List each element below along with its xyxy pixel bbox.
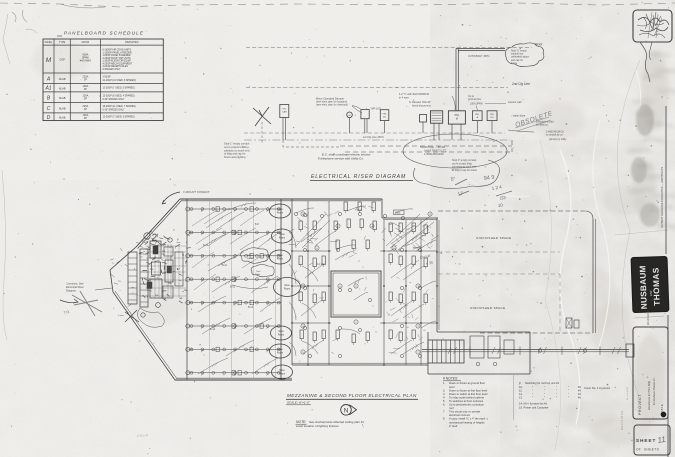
svg-text:": "	[544, 396, 545, 400]
svg-text:REVISIONS: REVISIONS	[620, 410, 624, 430]
svg-text:Down to fixture at first floor: Down to fixture at first floor level	[449, 388, 488, 392]
svg-text:This circuit only on private: This circuit only on private	[449, 410, 481, 414]
svg-text:Cond. No. 1 # ground: Cond. No. 1 # ground	[584, 386, 610, 390]
svg-text:Store: Store	[284, 284, 290, 287]
svg-text:"WP-100": "WP-100"	[370, 107, 381, 110]
svg-text:14. M.H. furnace fan #1: 14. M.H. furnace fan #1	[519, 402, 548, 406]
svg-text:Warehouse & Office Bldg: Warehouse & Office Bldg	[647, 380, 651, 410]
svg-text:exterior wall: exterior wall	[508, 101, 522, 104]
svg-text:24-20/1P (16 USED, 8 SPARES): 24-20/1P (16 USED, 8 SPARES)	[103, 79, 137, 82]
svg-text:12-20/1P (7 USED, 5 SPARES): 12-20/1P (7 USED, 5 SPARES)	[103, 87, 135, 90]
svg-text:Connects, See: Connects, See	[66, 282, 84, 286]
svg-text:Room: Room	[277, 353, 283, 355]
svg-text:DBL: DBL	[395, 211, 401, 215]
svg-text:#3: #3	[578, 389, 581, 393]
svg-text:of bldg 2 cap for future: of bldg 2 cap for future	[452, 169, 478, 172]
svg-text:V-MOUNT CONDUIT: V-MOUNT CONDUIT	[183, 190, 210, 194]
svg-text:Roof: Roof	[535, 43, 543, 47]
svg-text:": "	[532, 385, 533, 389]
svg-text:NLAB: NLAB	[59, 96, 66, 100]
svg-text:future: future	[511, 62, 518, 65]
svg-text:12.: 12.	[519, 392, 523, 396]
svg-text:SCALE: ⅛"=1’-0": SCALE: ⅛"=1’-0"	[287, 401, 311, 405]
svg-text:": "	[544, 385, 545, 389]
svg-text:NLAB: NLAB	[59, 107, 66, 111]
svg-text:100A 3P4W: 100A 3P4W	[470, 103, 483, 106]
svg-text:NUSBAUM: NUSBAUM	[638, 265, 649, 309]
svg-text:No. 1 6-12-57: No. 1 6-12-57	[627, 386, 629, 400]
svg-text:SHEET: SHEET	[636, 438, 656, 443]
svg-text:#5: #5	[578, 396, 581, 400]
svg-text:PNL: PNL	[150, 269, 154, 271]
svg-text:1-30/3P ELEVATOR EQUIP: 1-30/3P ELEVATOR EQUIP	[103, 60, 132, 63]
svg-text:PNL: PNL	[155, 295, 159, 297]
svg-text:Down to switch at first floor: Down to switch at first floor level	[449, 392, 488, 396]
svg-text:2" stud: 2" stud	[449, 424, 458, 428]
svg-text:Room: Room	[247, 255, 253, 257]
svg-text:¶ telephone service with Utili: ¶ telephone service with Utility Co.	[318, 157, 364, 161]
svg-text:in conduit by co.: in conduit by co.	[546, 134, 564, 137]
svg-text:UNFINISHED SPACE: UNFINISHED SPACE	[476, 236, 512, 240]
svg-text:THOMAS: THOMAS	[651, 267, 661, 306]
svg-text:": "	[556, 396, 557, 400]
svg-text:CUTR BODY 453½: CUTR BODY 453½	[468, 54, 491, 58]
svg-text:4.: 4.	[443, 395, 445, 399]
svg-text:Room: Room	[278, 335, 284, 337]
svg-text:13.: 13.	[519, 396, 523, 400]
svg-text:5.: 5.	[443, 399, 445, 403]
svg-text:12-20/1P (8 USED, 4 SPARES): 12-20/1P (8 USED, 4 SPARES)	[103, 95, 135, 98]
svg-text:3P: 3P	[84, 88, 87, 91]
svg-text:6-SPACES ONLY: 6-SPACES ONLY	[103, 68, 121, 71]
svg-text:1-#500-350 MCM: 1-#500-350 MCM	[424, 153, 443, 156]
svg-text:B-11: B-11	[222, 264, 228, 267]
svg-text:conduits on south end: conduits on south end	[224, 148, 250, 152]
svg-text:M: M	[349, 115, 351, 117]
svg-text:ENGINEERS: ENGINEERS	[648, 311, 650, 325]
svg-text:Store: Store	[279, 369, 285, 372]
svg-text:Switchleg for roof top unit #1: Switchleg for roof top unit #1	[525, 381, 560, 385]
svg-text:Room: Room	[284, 289, 290, 291]
svg-text:Store: Store	[278, 330, 284, 333]
svg-text:(see elect plan for interlock): (see elect plan for interlock)	[316, 103, 348, 107]
svg-text:To relay outlet behind cabinet: To relay outlet behind cabinet	[449, 395, 484, 399]
svg-text:mechanical heating of heights: mechanical heating of heights	[449, 420, 485, 424]
svg-text:2.: 2.	[443, 388, 445, 392]
svg-text:PANELBOARD SCHEDULE: PANELBOARD SCHEDULE	[64, 31, 144, 36]
svg-text:DATE: DATE	[660, 404, 664, 413]
svg-text:MEZZANINE & SECOND FLOOR ELECT: MEZZANINE & SECOND FLOOR ELECTRICAL PLAN	[287, 393, 417, 398]
svg-text:grnd wtr line: grnd wtr line	[468, 98, 482, 101]
svg-text:for Nusbaum-Thomas Inc.: for Nusbaum-Thomas Inc.	[653, 377, 656, 405]
svg-text:1-100/3P PANEL A FEEDER: 1-100/3P PANEL A FEEDER	[103, 51, 132, 54]
svg-text:": "	[556, 389, 557, 393]
svg-text:D: D	[47, 115, 51, 121]
svg-text:by utility co.: by utility co.	[536, 124, 549, 127]
svg-text:level: level	[449, 385, 455, 389]
svg-text:": "	[556, 392, 557, 396]
svg-text:out to expect building: out to expect building	[224, 145, 249, 149]
svg-text:": "	[532, 392, 533, 396]
svg-text:": "	[568, 389, 569, 393]
svg-text:roof: roof	[449, 406, 454, 410]
svg-text:B-13: B-13	[248, 306, 254, 309]
svg-text:Store: Store	[277, 254, 283, 257]
svg-text:exact location of lighting fix: exact location of lighting fixtures.	[296, 424, 340, 428]
svg-text:PNL: PNL	[146, 239, 150, 241]
svg-text:Turn: Turn	[256, 270, 261, 273]
svg-text:in 4 wire: in 4 wire	[399, 96, 409, 100]
svg-text:1.: 1.	[443, 381, 445, 385]
svg-text:UNFINISHED SPACE: UNFINISHED SPACE	[470, 306, 506, 310]
svg-text:Stub 1" empty conduit: Stub 1" empty conduit	[224, 142, 250, 146]
svg-text:BRANCHES: BRANCHES	[125, 41, 139, 44]
svg-text:COP: COP	[59, 58, 65, 62]
svg-text:PROJECT: PROJECT	[638, 394, 642, 415]
svg-text:": "	[544, 392, 545, 396]
svg-text:11.: 11.	[519, 389, 523, 393]
svg-text:": "	[532, 396, 533, 400]
svg-text:": "	[532, 389, 533, 393]
svg-text:Diagram: Diagram	[66, 288, 77, 292]
svg-text:C: C	[47, 106, 51, 112]
svg-text:18-20/1P (11 USED, 7 SPARES): 18-20/1P (11 USED, 7 SPARES)	[103, 105, 136, 108]
svg-text:6-100/2P AIR COND UNITS: 6-100/2P AIR COND UNITS	[103, 49, 132, 52]
svg-text:OF: OF	[636, 448, 641, 452]
svg-text:": "	[556, 385, 557, 389]
svg-text:Room: Room	[277, 259, 283, 261]
svg-text:2-50/2P: 2-50/2P	[103, 77, 112, 79]
svg-text:Panels: Panels	[247, 258, 255, 260]
svg-text:B-8: B-8	[255, 223, 259, 226]
svg-text:PANEL: PANEL	[45, 41, 53, 44]
svg-text:N: N	[344, 407, 349, 414]
svg-text:3P: 3P	[84, 98, 87, 101]
svg-text:CAB: CAB	[282, 111, 287, 114]
svg-text:1st Clg Line 453½: 1st Clg Line 453½	[363, 135, 385, 139]
svg-text:Table: Table	[255, 274, 261, 276]
svg-text:SCHMIDT GARDEN & ASSOCIATES —: SCHMIDT GARDEN & ASSOCIATES — ARCHITECTS	[661, 167, 664, 228]
svg-text:6-30" SPACES ONLY: 6-30" SPACES ONLY	[103, 98, 125, 101]
svg-text:Down to fixture at ground floo: Down to fixture at ground floor	[449, 381, 485, 385]
svg-text:A copy, install ½" x 4" tile e: A copy, install ½" x 4" tile each	[449, 417, 486, 421]
svg-text:of bldg and cap for: of bldg and cap for	[224, 152, 246, 156]
svg-text:Room: Room	[277, 213, 283, 215]
svg-text:": "	[568, 392, 569, 396]
svg-text:Store: Store	[279, 233, 285, 236]
svg-text:primary by utility: primary by utility	[549, 138, 567, 141]
svg-text:MAINS: MAINS	[82, 41, 90, 44]
svg-text:6.: 6.	[443, 403, 445, 407]
svg-text:ELECTRICAL RISER DIAGRAM: ELECTRICAL RISER DIAGRAM	[311, 174, 406, 180]
svg-text:Store: Store	[277, 348, 283, 351]
svg-text:15. Power unit Complete: 15. Power unit Complete	[519, 405, 549, 409]
svg-text:# NOTES:: # NOTES:	[443, 377, 458, 381]
svg-text:1-2 ½" with #4/0-500MCM: 1-2 ½" with #4/0-500MCM	[399, 92, 429, 96]
svg-text:SHEETS: SHEETS	[644, 448, 659, 452]
svg-text:7.: 7.	[443, 410, 445, 414]
svg-text:4-20/3P MECH EQUIPMENT: 4-20/3P MECH EQUIPMENT	[103, 63, 133, 65]
svg-text:#2: #2	[578, 385, 581, 389]
svg-text:10.: 10.	[519, 385, 523, 389]
svg-text:NLAB: NLAB	[59, 77, 66, 81]
svg-text:11: 11	[657, 435, 667, 445]
svg-text:8.: 8.	[443, 417, 445, 421]
svg-text:": "	[568, 396, 569, 400]
svg-text:": "	[544, 389, 545, 393]
svg-text:PNL: PNL	[162, 251, 166, 253]
svg-text:PNL: PNL	[168, 283, 172, 285]
svg-text:electrical contract: electrical contract	[449, 413, 470, 417]
svg-text:#4/0 AWG: #4/0 AWG	[80, 60, 91, 63]
svg-text:6-30" SPACES ONLY: 6-30" SPACES ONLY	[103, 108, 125, 111]
svg-text:2nd Clg Line: 2nd Clg Line	[511, 82, 530, 86]
svg-text:A: A	[46, 77, 51, 83]
svg-text:M: M	[456, 118, 458, 121]
svg-text:1-60/3P PANEL B FEEDER: 1-60/3P PANEL B FEEDER	[103, 54, 131, 57]
svg-text:3P: 3P	[84, 108, 87, 111]
svg-text:fused disconnect: fused disconnect	[412, 104, 431, 107]
svg-text:future area lighting: future area lighting	[224, 155, 246, 159]
svg-text:Store: Store	[277, 208, 283, 211]
svg-text:A1: A1	[44, 86, 51, 92]
svg-text:#4: #4	[578, 392, 581, 396]
svg-text:NLAB: NLAB	[59, 86, 66, 90]
svg-text:To switches at front entrance: To switches at front entrance	[449, 399, 484, 403]
svg-text:M: M	[46, 57, 52, 64]
svg-text:3.: 3.	[443, 392, 445, 396]
svg-text:water base: water base	[513, 115, 526, 118]
svg-text:TYPE: TYPE	[59, 41, 66, 44]
svg-text:12-20/1P (7 USED, 5 SPARES): 12-20/1P (7 USED, 5 SPARES)	[103, 116, 135, 119]
svg-text:Up to photoelectric control on: Up to photoelectric control on	[449, 403, 484, 407]
svg-text:2-20/1P RECEPTACLES: 2-20/1P RECEPTACLES	[103, 65, 129, 68]
svg-text:Room: Room	[279, 374, 285, 376]
svg-text:3P: 3P	[84, 79, 87, 82]
svg-text:NLAB: NLAB	[59, 115, 66, 119]
svg-text:14-7½": 14-7½"	[317, 262, 325, 266]
svg-text:B-10: B-10	[203, 244, 209, 247]
svg-text:Electrical Riser: Electrical Riser	[66, 285, 84, 289]
svg-text:4-30/3P ROOF TOP UNITS: 4-30/3P ROOF TOP UNITS	[103, 58, 132, 60]
svg-text:Room: Room	[279, 238, 285, 240]
svg-text:": "	[568, 385, 569, 389]
svg-text:3P: 3P	[84, 117, 87, 120]
